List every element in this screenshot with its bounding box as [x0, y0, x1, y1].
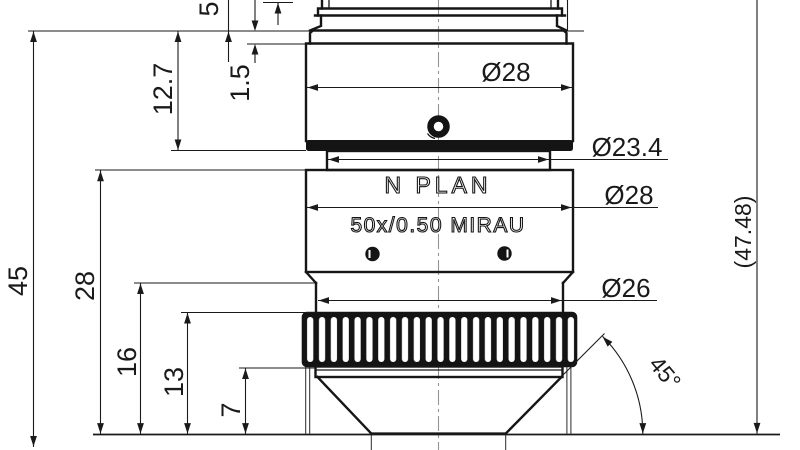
angle-arc [603, 336, 643, 434]
dim-5-label: 5 [194, 1, 224, 16]
dia-26-label: Ø26 [601, 273, 650, 303]
objective-technical-drawing: N PLAN 50x/0.50 MIRAU [0, 0, 800, 450]
thread-relief-lines [329, 0, 551, 9]
cone-nose [318, 377, 562, 434]
dim-13-label: 13 [159, 367, 189, 397]
lower-barrel [316, 283, 563, 313]
dia-23-4-label: Ø23.4 [592, 132, 663, 162]
cone-angle-label: 45° [644, 351, 686, 394]
overall-length-label: (47.48) [730, 196, 756, 269]
thread-tube [322, 0, 558, 9]
set-screw-hole [431, 119, 447, 135]
dim-12-7-label: 12.7 [148, 63, 178, 116]
adjustment-screw-left [365, 247, 379, 261]
dim-45-label: 45 [3, 266, 33, 296]
dim-7-label: 7 [216, 402, 246, 417]
dim-16-label: 16 [112, 347, 142, 377]
engraving-spec-label: 50x/0.50 MIRAU [350, 214, 525, 237]
dim-1-5-label: 1.5 [225, 64, 255, 102]
knurled-ring [303, 313, 576, 366]
adjustment-screw-right [497, 246, 511, 260]
locking-band [306, 140, 573, 151]
dia-28-mid-label: Ø28 [604, 180, 653, 210]
chamfer [306, 272, 573, 283]
engraving-series-label: N PLAN [384, 172, 491, 198]
dim-28-label: 28 [70, 271, 100, 301]
dia-28-upper-label: Ø28 [481, 57, 530, 87]
